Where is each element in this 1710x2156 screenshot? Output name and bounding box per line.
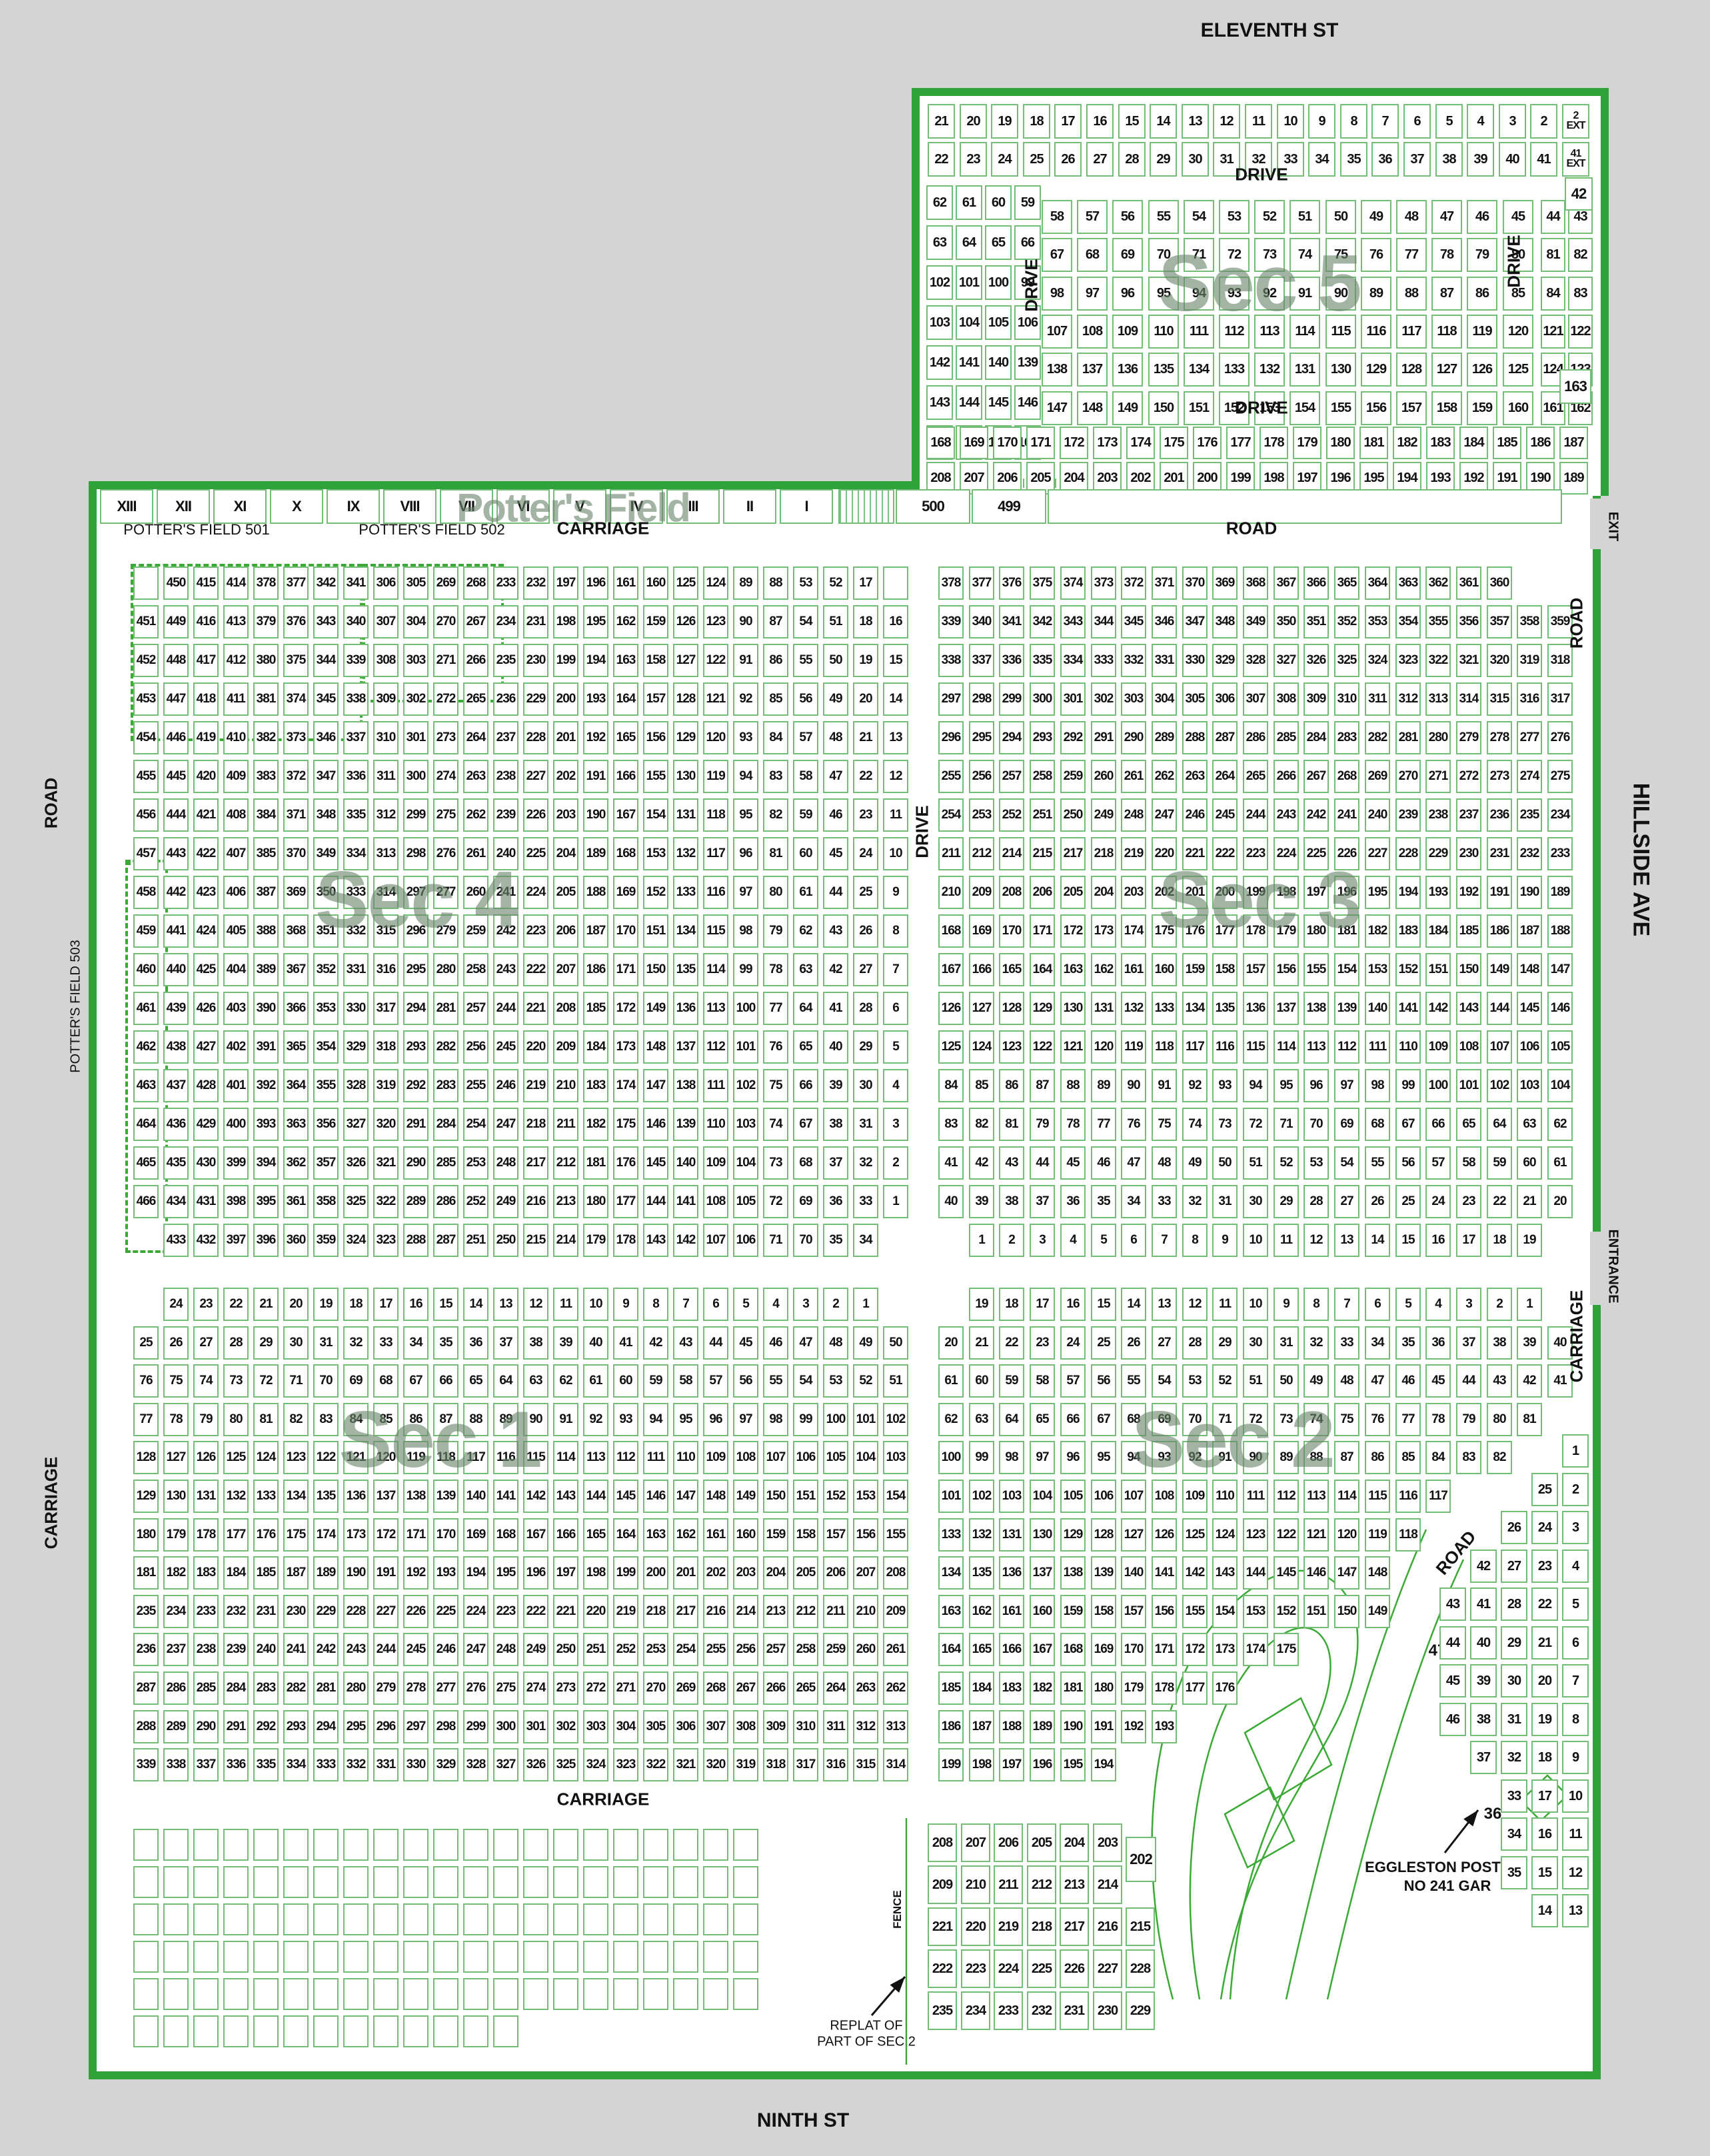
plot-cell: 223 (523, 914, 548, 948)
plot-cell: 70 (313, 1364, 339, 1398)
plot-cell: 67 (1091, 1403, 1116, 1436)
plot-cell: 254 (463, 1108, 488, 1141)
plot-cell: 8 (883, 914, 908, 948)
plot-cell: 123 (703, 605, 728, 638)
plot-cell: 348 (1212, 605, 1238, 638)
plot-cell: 326 (1303, 644, 1329, 677)
plot-cell: 325 (1334, 644, 1359, 677)
plot-cell (403, 2015, 428, 2047)
plot-cell: 214 (733, 1595, 758, 1628)
plot-cell: 28 (1118, 142, 1146, 177)
plot-cell: 185 (1456, 914, 1481, 948)
plot-cell: 140 (1365, 992, 1390, 1025)
plot-cell: 286 (163, 1671, 189, 1705)
plot-cell: 202 (703, 1556, 728, 1590)
plot-cell: 82 (969, 1108, 994, 1141)
plot-cell: 267 (463, 605, 488, 638)
plot-cell: 8 (1303, 1288, 1329, 1321)
plot-cell: 211 (823, 1595, 848, 1628)
plot-cell: 10 (1243, 1224, 1268, 1257)
plot-cell: 343 (313, 605, 339, 638)
plot-cell: 252 (613, 1633, 638, 1666)
plot-cell: 226 (1060, 1949, 1089, 1988)
plot-cell: 315 (853, 1748, 878, 1781)
plot-cell: 65 (1456, 1108, 1481, 1141)
plot-cell: 132 (1121, 992, 1146, 1025)
plot-cell: 122 (1568, 315, 1593, 349)
plot-cell: 401 (223, 1069, 249, 1102)
plot-cell (703, 1866, 728, 1898)
plot-cell: 36 (1060, 1185, 1086, 1218)
plot-cell: 7 (1371, 104, 1399, 139)
plot-cell: 370 (1182, 566, 1208, 600)
plot-cell: 45 (733, 1326, 758, 1360)
plot-cell: 230 (1093, 1991, 1122, 2030)
plot-cell: 18 (1531, 1741, 1558, 1774)
plot-cell: 215 (1030, 837, 1055, 870)
plot-cell: 181 (1060, 1671, 1086, 1705)
plot-cell: 221 (928, 1907, 957, 1946)
plot-cell (313, 1829, 339, 1861)
plot-cell: 16 (1531, 1817, 1558, 1851)
plot-cell: 241 (283, 1633, 309, 1666)
plot-cell: 19 (853, 644, 878, 677)
plot-cell: 458 (133, 876, 159, 909)
plot-cell: 37 (1030, 1185, 1055, 1218)
plot-cell: 110 (703, 1108, 728, 1141)
plot-cell: 218 (1027, 1907, 1056, 1946)
plot-cell: 138 (1042, 353, 1072, 387)
plot-cell: 102 (1487, 1069, 1512, 1102)
plot-cell: 309 (373, 682, 399, 716)
plot-cell: 240 (1365, 798, 1390, 832)
plot-cell: 323 (373, 1224, 399, 1257)
plot-cell: 189 (583, 837, 608, 870)
plot-cell: 40 (1499, 142, 1526, 177)
plot-cell: 209 (928, 1865, 957, 1904)
plot-cell: 313 (883, 1710, 908, 1743)
plot-cell: 16 (1425, 1224, 1451, 1257)
plot-cell: 75 (763, 1069, 788, 1102)
plot-cell: 427 (193, 1030, 219, 1064)
plot-cell: 249 (523, 1633, 548, 1666)
plot-cell: 218 (1091, 837, 1116, 870)
plot-cell: 130 (1030, 1518, 1055, 1552)
plot-cell: 37 (1456, 1326, 1481, 1360)
plot-cell: 121 (1541, 315, 1565, 349)
plot-cell: 209 (883, 1595, 908, 1628)
plot-cell: 137 (1077, 353, 1108, 387)
plot-cell: 191 (1091, 1710, 1116, 1743)
plot-cell: 17 (853, 566, 878, 600)
plot-cell: 12 (1303, 1224, 1329, 1257)
plot-cell: 236 (1487, 798, 1512, 832)
plot-cell: 200 (553, 682, 578, 716)
plot-cell: 122 (1030, 1030, 1055, 1064)
plot-cell: 14 (463, 1288, 488, 1321)
plot-cell: 426 (193, 992, 219, 1025)
plot-cell: 174 (613, 1069, 638, 1102)
plot-cell: 105 (823, 1441, 848, 1474)
plot-cell: 319 (1517, 644, 1542, 677)
plot-cell: 28 (1182, 1326, 1208, 1360)
plot-cell: 273 (1487, 760, 1512, 793)
plot-cell: 253 (969, 798, 994, 832)
plot-cell: 242 (1303, 798, 1329, 832)
plot-cell: 274 (523, 1671, 548, 1705)
plot-cell: 68 (793, 1146, 818, 1180)
plot-cell: 125 (1503, 353, 1533, 387)
plot-cell: 62 (553, 1364, 578, 1398)
plot-cell: 66 (433, 1364, 458, 1398)
plot-cell (193, 2015, 219, 2047)
plot-cell: 180 (1091, 1671, 1116, 1705)
plot-cell: 354 (313, 1030, 339, 1064)
plot-cell: 125 (673, 566, 698, 600)
section-watermark: Sec 3 (1158, 854, 1361, 946)
plot-cell: 245 (493, 1030, 518, 1064)
plot-cell: 318 (763, 1748, 788, 1781)
plot-cell: VIII (383, 489, 436, 524)
plot-cell: 7 (1334, 1288, 1359, 1321)
plot-cell: 106 (1517, 1030, 1542, 1064)
plot-cell: 5 (1395, 1288, 1421, 1321)
plot-cell: 416 (193, 605, 219, 638)
plot-cell: 171 (613, 953, 638, 986)
plot-cell: 35 (1340, 142, 1367, 177)
plot-cell: 465 (133, 1146, 159, 1180)
plot-cell: 303 (1121, 682, 1146, 716)
plot-cell: 156 (1274, 953, 1299, 986)
plot-cell: 369 (283, 876, 309, 909)
plot-cell: 143 (926, 385, 953, 420)
plot-cell: 280 (1425, 721, 1451, 754)
plot-cell (583, 1941, 608, 1973)
plot-cell: 129 (673, 721, 698, 754)
plot-cell: 85 (763, 682, 788, 716)
plot-cell: 101 (853, 1403, 878, 1436)
plot-cell: 282 (433, 1030, 458, 1064)
plot-cell: 2 (1487, 1288, 1512, 1321)
plot-cell: 44 (1456, 1364, 1481, 1398)
plot-cell: 43 (999, 1146, 1024, 1180)
plot-cell: 255 (703, 1633, 728, 1666)
plot-cell: 235 (928, 1991, 957, 2030)
plot-cell: 21 (969, 1326, 994, 1360)
plot-cell: 207 (853, 1556, 878, 1590)
plot-cell: 181 (1359, 427, 1388, 459)
plot-cell: 191 (583, 760, 608, 793)
plot-cell: 4 (1425, 1288, 1451, 1321)
plot-cell: 180 (1326, 427, 1355, 459)
plot-cell (163, 1903, 189, 1935)
plot-cell: 433 (163, 1224, 189, 1257)
plot-cell: 243 (493, 953, 518, 986)
plot-cell: 182 (163, 1556, 189, 1590)
plot-cell: 88 (763, 566, 788, 600)
plot-cell: 11 (1274, 1224, 1299, 1257)
plot-cell: 13 (883, 721, 908, 754)
plot-cell: 133 (673, 876, 698, 909)
plot-cell: 53 (1303, 1146, 1329, 1180)
plot-cell: 333 (313, 1748, 339, 1781)
plot-cell: 179 (583, 1224, 608, 1257)
plot-cell: 38 (1487, 1326, 1512, 1360)
plot-cell (373, 1866, 399, 1898)
plot-cell: 149 (1365, 1595, 1390, 1628)
plot-cell: 77 (1396, 238, 1427, 272)
plot-cell: 164 (613, 1518, 638, 1552)
plot-cell: 316 (1517, 682, 1542, 716)
plot-cell: 122 (313, 1441, 339, 1474)
plot-cell: 61 (793, 876, 818, 909)
plot-cell: 213 (763, 1595, 788, 1628)
plot-cell: 307 (373, 605, 399, 638)
plot-cell: 419 (193, 721, 219, 754)
plot-cell: 257 (763, 1633, 788, 1666)
plot-cell: 329 (433, 1748, 458, 1781)
plot-cell: 453 (133, 682, 159, 716)
plot-cell: 51 (1289, 200, 1320, 234)
plot-cell: 247 (493, 1108, 518, 1141)
plot-cell: 103 (883, 1441, 908, 1474)
plot-cell: 59 (793, 798, 818, 832)
plot-cell: 177 (1182, 1671, 1208, 1705)
plot-cell: 31 (313, 1326, 339, 1360)
plot-cell: 296 (938, 721, 964, 754)
plot-cell (523, 1903, 548, 1935)
plot-cell (733, 1941, 758, 1973)
plot-cell: 132 (223, 1480, 249, 1513)
plot-cell: 211 (553, 1108, 578, 1141)
plot-cell: 93 (733, 721, 758, 754)
plot-cell: 193 (1152, 1710, 1177, 1743)
plot-cell: 173 (343, 1518, 369, 1552)
plot-cell: 108 (733, 1441, 758, 1474)
plot-cell: 172 (1060, 914, 1086, 948)
plot-cell: 132 (1254, 353, 1285, 387)
plot-cell: 9 (1212, 1224, 1238, 1257)
plot-cell: 167 (613, 798, 638, 832)
plot-cell: 31 (1501, 1703, 1527, 1736)
plot-cell: 284 (1303, 721, 1329, 754)
plot-cell: 27 (193, 1326, 219, 1360)
plot-cell: 159 (763, 1518, 788, 1552)
plot-cell: 199 (553, 644, 578, 677)
plot-cell: 294 (313, 1710, 339, 1743)
plot-cell: 169 (463, 1518, 488, 1552)
plot-cell: 374 (1060, 566, 1086, 600)
road-label: DRIVE (1022, 259, 1042, 311)
plot-cell: 135 (969, 1556, 994, 1590)
plot-cell: 159 (1467, 391, 1497, 425)
plot-cell: 147 (1042, 391, 1072, 425)
plot-cell: 51 (1243, 1146, 1268, 1180)
plot-cell: 278 (403, 1671, 428, 1705)
plot-cell: 311 (1365, 682, 1390, 716)
plot-cell: 32 (343, 1326, 369, 1360)
plot-cell: 98 (999, 1441, 1024, 1474)
plot-cell: 176 (1193, 427, 1222, 459)
plot-cell: 99 (733, 953, 758, 986)
plot-cell: 299 (403, 798, 428, 832)
plot-cell: 126 (193, 1441, 219, 1474)
plot-cell: 398 (223, 1185, 249, 1218)
plot-cell (193, 1829, 219, 1861)
plot-cell (133, 1903, 159, 1935)
plot-cell: 308 (1274, 682, 1299, 716)
plot-cell: 281 (313, 1671, 339, 1705)
plot-cell: 170 (999, 914, 1024, 948)
plot-cell: 160 (1503, 391, 1533, 425)
plot-cell: 15 (1091, 1288, 1116, 1321)
plot-cell: 202 (1126, 1837, 1156, 1882)
plot-cell: 23 (193, 1288, 219, 1321)
plot-cell: 380 (253, 644, 279, 677)
plot-cell: 66 (1014, 225, 1041, 260)
plot-cell: 76 (1361, 238, 1391, 272)
plot-cell: 104 (733, 1146, 758, 1180)
plot-cell: 45 (1060, 1146, 1086, 1180)
plot-cell (133, 1978, 159, 2010)
plot-cell: 15 (883, 644, 908, 677)
plot-cell: 338 (343, 682, 369, 716)
plot-cell: 149 (733, 1480, 758, 1513)
plot-cell: 8 (643, 1288, 668, 1321)
plot-cell: 54 (1334, 1146, 1359, 1180)
plot-cell: 308 (373, 644, 399, 677)
plot-cell: 294 (999, 721, 1024, 754)
plot-cell: 142 (1182, 1556, 1208, 1590)
plot-cell: 29 (853, 1030, 878, 1064)
plot-cell: 432 (193, 1224, 219, 1257)
plot-cell: 21 (253, 1288, 279, 1321)
plot-cell: 78 (763, 953, 788, 986)
plot-cell: 53 (1182, 1364, 1208, 1398)
plot-cell (223, 1978, 249, 2010)
plot-cell: 235 (1517, 798, 1542, 832)
plot-cell: 2 EXT (1562, 104, 1589, 139)
plot-cell: 96 (1060, 1441, 1086, 1474)
plot-cell: 275 (493, 1671, 518, 1705)
plot-cell: 95 (673, 1403, 698, 1436)
plot-cell: 283 (433, 1069, 458, 1102)
plot-cell: 104 (853, 1441, 878, 1474)
road-label: ROAD (1226, 519, 1278, 539)
plot-cell: 131 (999, 1518, 1024, 1552)
plot-cell: 402 (223, 1030, 249, 1064)
plot-cell: 162 (673, 1518, 698, 1552)
plot-cell: 27 (1152, 1326, 1177, 1360)
plot-cell: X (270, 489, 323, 524)
plot-cell: 34 (403, 1326, 428, 1360)
plot-cell: 161 (1121, 953, 1146, 986)
plot-cell: 77 (1091, 1108, 1116, 1141)
plot-cell: 262 (463, 798, 488, 832)
plot-cell: 261 (1121, 760, 1146, 793)
plot-cell: 72 (253, 1364, 279, 1398)
plot-cell: 466 (133, 1185, 159, 1218)
plot-cell: 266 (463, 644, 488, 677)
plot-cell: 34 (1501, 1817, 1527, 1851)
plot-cell: 447 (163, 682, 189, 716)
plot-cell: 57 (1425, 1146, 1451, 1180)
plot-cell: 21 (1531, 1626, 1558, 1659)
plot-cell: 371 (283, 798, 309, 832)
plot-cell: 94 (643, 1403, 668, 1436)
plot-cell: 15 (1395, 1224, 1421, 1257)
plot-cell: 17 (1054, 104, 1082, 139)
plot-cell: 47 (1431, 200, 1462, 234)
plot-cell: 262 (883, 1671, 908, 1705)
plot-cell: 237 (163, 1633, 189, 1666)
plot-cell: 377 (969, 566, 994, 600)
plot-cell: 39 (969, 1185, 994, 1218)
plot-cell: 444 (163, 798, 189, 832)
plot-cell: 149 (643, 992, 668, 1025)
plot-cell: 304 (403, 605, 428, 638)
plot-cell: 74 (1182, 1108, 1208, 1141)
plot-cell: 372 (283, 760, 309, 793)
plot-cell: 126 (1467, 353, 1497, 387)
plot-cell: 48 (1334, 1364, 1359, 1398)
plot-cell: 228 (1395, 837, 1421, 870)
plot-cell: 142 (673, 1224, 698, 1257)
plot-cell: 331 (373, 1748, 399, 1781)
plot-cell: 2 (823, 1288, 848, 1321)
plot-cell: 80 (223, 1403, 249, 1436)
plot-cell: 25 (853, 876, 878, 909)
plot-cell: 123 (999, 1030, 1024, 1064)
plot-cell: 252 (463, 1185, 488, 1218)
plot-cell: 355 (1425, 605, 1451, 638)
plot-cell: 3 (793, 1288, 818, 1321)
plot-cell: 301 (403, 721, 428, 754)
plot-cell: 45 (1425, 1364, 1451, 1398)
plot-cell: 43 (1487, 1364, 1512, 1398)
plot-cell: 246 (493, 1069, 518, 1102)
plot-cell: 353 (313, 992, 339, 1025)
plot-cell: 128 (1091, 1518, 1116, 1552)
plot-cell: 319 (733, 1748, 758, 1781)
plot-cell: 140 (985, 345, 1012, 380)
plot-cell: 227 (373, 1595, 399, 1628)
plot-cell: 219 (613, 1595, 638, 1628)
plot-cell (373, 1941, 399, 1973)
plot-cell: 201 (673, 1556, 698, 1590)
plot-cell: 129 (1030, 992, 1055, 1025)
plot-cell (343, 1829, 369, 1861)
plot-cell: 204 (763, 1556, 788, 1590)
plot-cell: 389 (253, 953, 279, 986)
plot-cell: 291 (1091, 721, 1116, 754)
plot-cell: 250 (1060, 798, 1086, 832)
plot-cell: 95 (1091, 1441, 1116, 1474)
plot-cell: 192 (403, 1556, 428, 1590)
plot-cell: 151 (1303, 1595, 1329, 1628)
plot-cell: 105 (1060, 1480, 1086, 1513)
plot-cell: 313 (1425, 682, 1451, 716)
plot-cell: 161 (613, 566, 638, 600)
plot-cell: 8 (1340, 104, 1367, 139)
plot-cell: 136 (1243, 992, 1268, 1025)
plot-cell: 100 (938, 1441, 964, 1474)
plot-cell: 5 (1091, 1224, 1116, 1257)
plot-cell (553, 1941, 578, 1973)
plot-cell: 102 (883, 1403, 908, 1436)
eggleston-line1: EGGLESTON POST (1365, 1859, 1501, 1876)
plot-cell: 33 (1334, 1326, 1359, 1360)
